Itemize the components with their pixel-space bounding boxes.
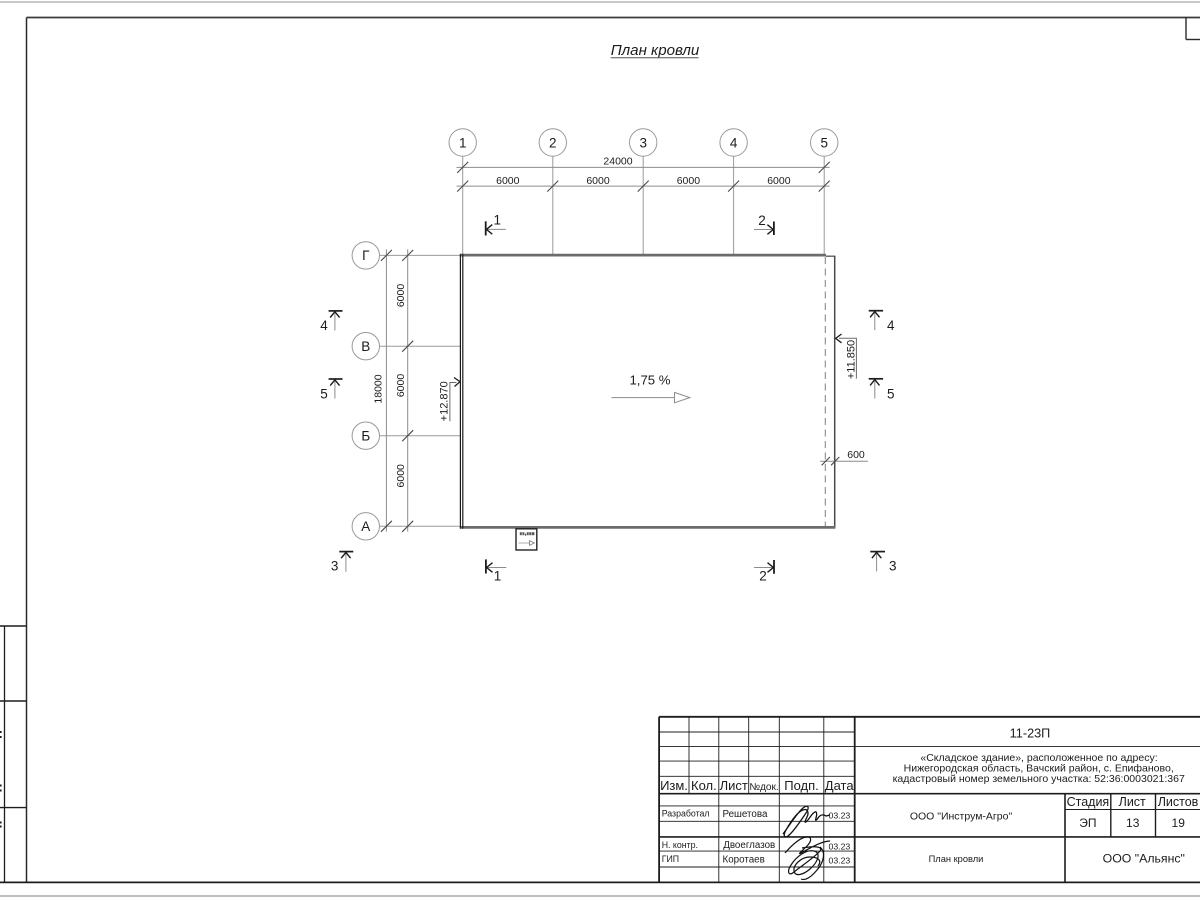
svg-text:2: 2	[758, 213, 766, 228]
svg-text:Дата: Дата	[825, 778, 855, 793]
svg-text:6000: 6000	[677, 175, 701, 187]
svg-text:1: 1	[494, 212, 502, 227]
svg-text:3: 3	[331, 559, 339, 574]
svg-text:2: 2	[759, 569, 767, 584]
svg-text:18000: 18000	[372, 374, 384, 403]
svg-text:Изм.: Изм.	[660, 778, 688, 793]
svg-text:1,75 %: 1,75 %	[629, 373, 670, 388]
svg-text:Коротаев: Коротаев	[723, 855, 765, 866]
svg-text:+11.850: +11.850	[846, 340, 858, 379]
svg-text:ООО "Инструм-Агро": ООО "Инструм-Агро"	[910, 811, 1013, 823]
svg-text:+12.870: +12.870	[439, 381, 451, 421]
svg-text:Разработал: Разработал	[662, 809, 710, 819]
svg-text:6000: 6000	[395, 284, 407, 308]
svg-text:Стадия: Стадия	[1067, 795, 1110, 809]
svg-text:План кровли: План кровли	[929, 854, 984, 864]
svg-text:5: 5	[820, 135, 828, 150]
svg-text:6000: 6000	[395, 464, 407, 488]
svg-text:600: 600	[847, 449, 865, 461]
svg-text:Лист: Лист	[720, 778, 748, 793]
svg-text:План кровли: План кровли	[611, 42, 700, 59]
svg-text:Листов: Листов	[1158, 795, 1199, 809]
svg-text:В: В	[361, 339, 370, 354]
svg-text:2: 2	[549, 135, 557, 150]
svg-text:ООО "Альянс": ООО "Альянс"	[1103, 852, 1185, 866]
svg-text:3: 3	[889, 559, 897, 574]
svg-text:5: 5	[320, 386, 328, 401]
svg-text:03.23: 03.23	[829, 856, 851, 866]
svg-text:Кол.: Кол.	[691, 778, 717, 793]
svg-text:11-23П: 11-23П	[1010, 726, 1051, 740]
svg-text:1: 1	[494, 568, 502, 583]
svg-text:24000: 24000	[603, 155, 632, 167]
svg-text:1: 1	[459, 135, 467, 150]
svg-text:Лист: Лист	[1119, 795, 1146, 809]
svg-text:6000: 6000	[767, 175, 791, 187]
svg-text:4: 4	[887, 318, 895, 333]
svg-text:5: 5	[887, 387, 895, 402]
svg-text:№док.: №док.	[749, 782, 778, 793]
svg-text:Подп.: Подп.	[784, 778, 819, 793]
svg-text:03.23: 03.23	[829, 841, 851, 851]
svg-text:19: 19	[1172, 816, 1186, 830]
svg-text:Г: Г	[362, 248, 370, 263]
svg-text:03.23: 03.23	[829, 810, 851, 820]
svg-text:6000: 6000	[496, 175, 520, 187]
svg-text:4: 4	[730, 135, 738, 150]
svg-text:Б: Б	[361, 429, 370, 444]
svg-text:4: 4	[320, 318, 328, 333]
svg-text:Двоеглазов: Двоеглазов	[723, 840, 775, 851]
svg-text:6000: 6000	[395, 374, 407, 398]
svg-text:А: А	[361, 519, 370, 534]
svg-text:ЭП: ЭП	[1079, 816, 1096, 830]
svg-text:Н. контр.: Н. контр.	[662, 840, 698, 850]
svg-text:ГИП: ГИП	[662, 854, 679, 864]
svg-text:13: 13	[1126, 816, 1140, 830]
svg-text:Решетова: Решетова	[723, 809, 768, 820]
svg-text:6000: 6000	[586, 175, 610, 187]
svg-text:кадастровый номер земельного у: кадастровый номер земельного участка: 52…	[893, 773, 1185, 785]
svg-text:3: 3	[639, 135, 647, 150]
